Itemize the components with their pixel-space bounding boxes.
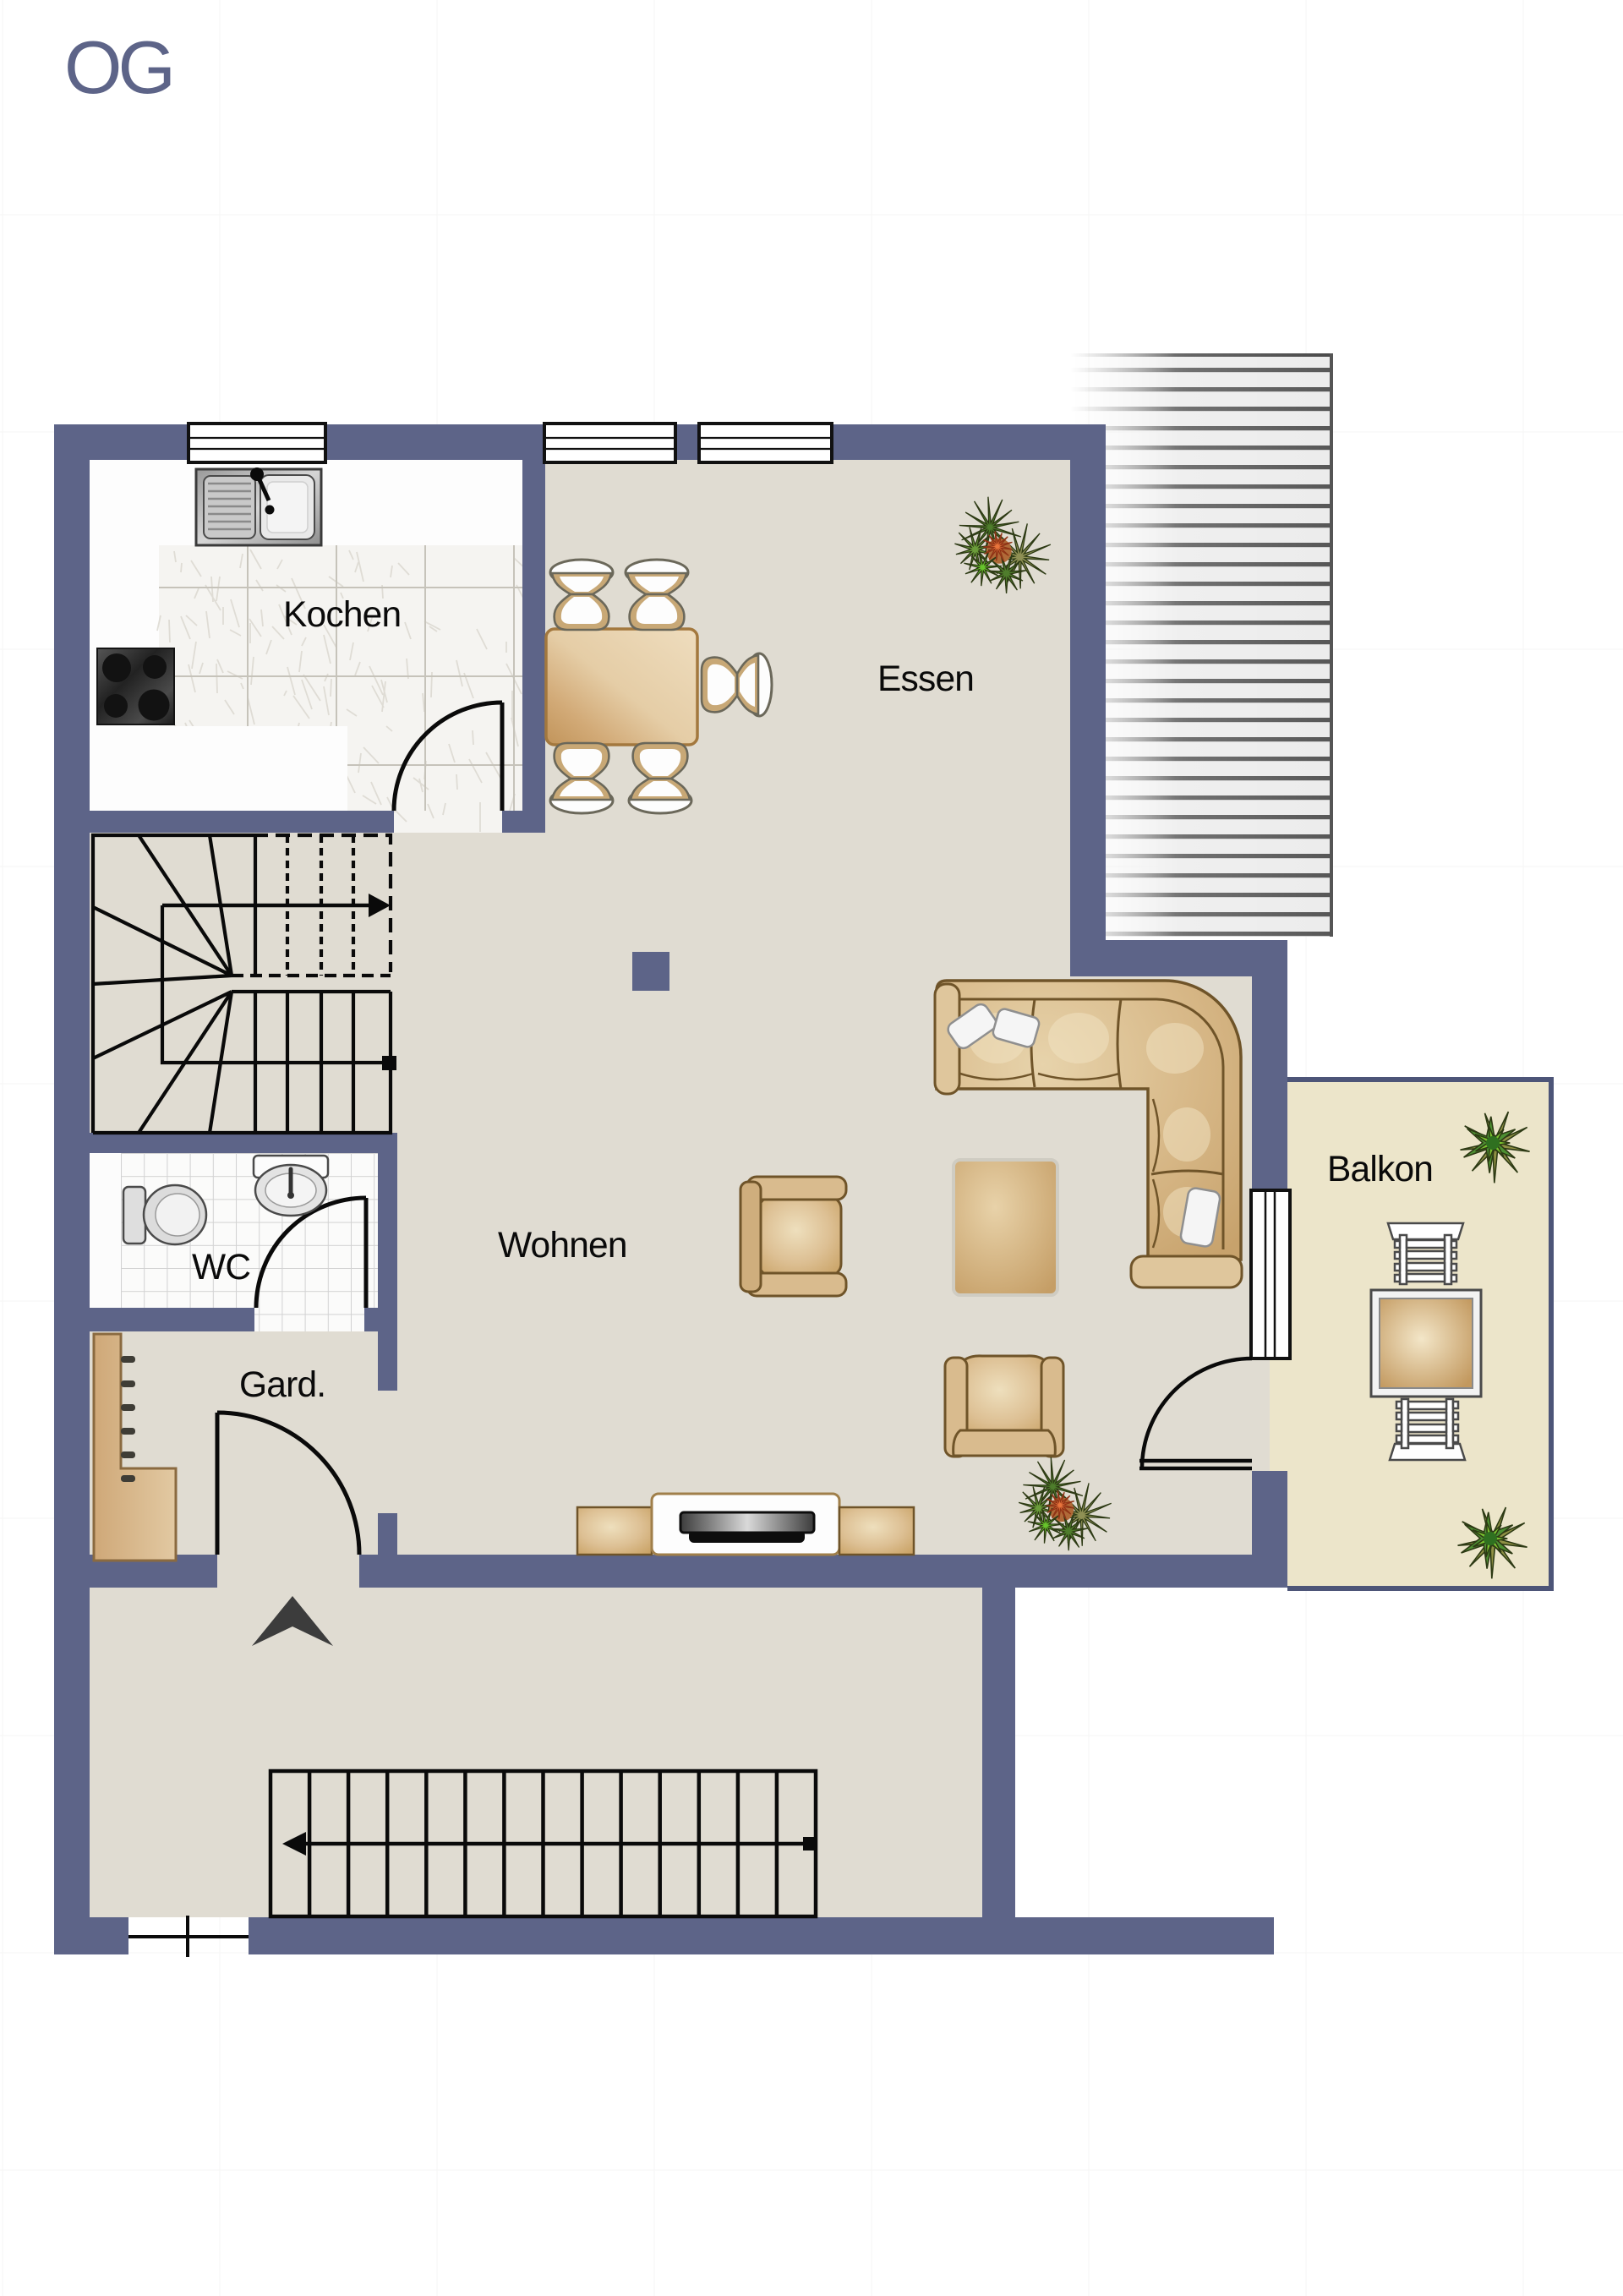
- svg-text:Gard.: Gard.: [239, 1365, 325, 1405]
- svg-text:WC: WC: [192, 1248, 250, 1287]
- svg-text:Balkon: Balkon: [1327, 1150, 1433, 1189]
- svg-text:Essen: Essen: [877, 659, 974, 699]
- svg-text:Kochen: Kochen: [283, 595, 401, 635]
- svg-text:Wohnen: Wohnen: [498, 1226, 627, 1266]
- svg-text:OG: OG: [64, 25, 172, 109]
